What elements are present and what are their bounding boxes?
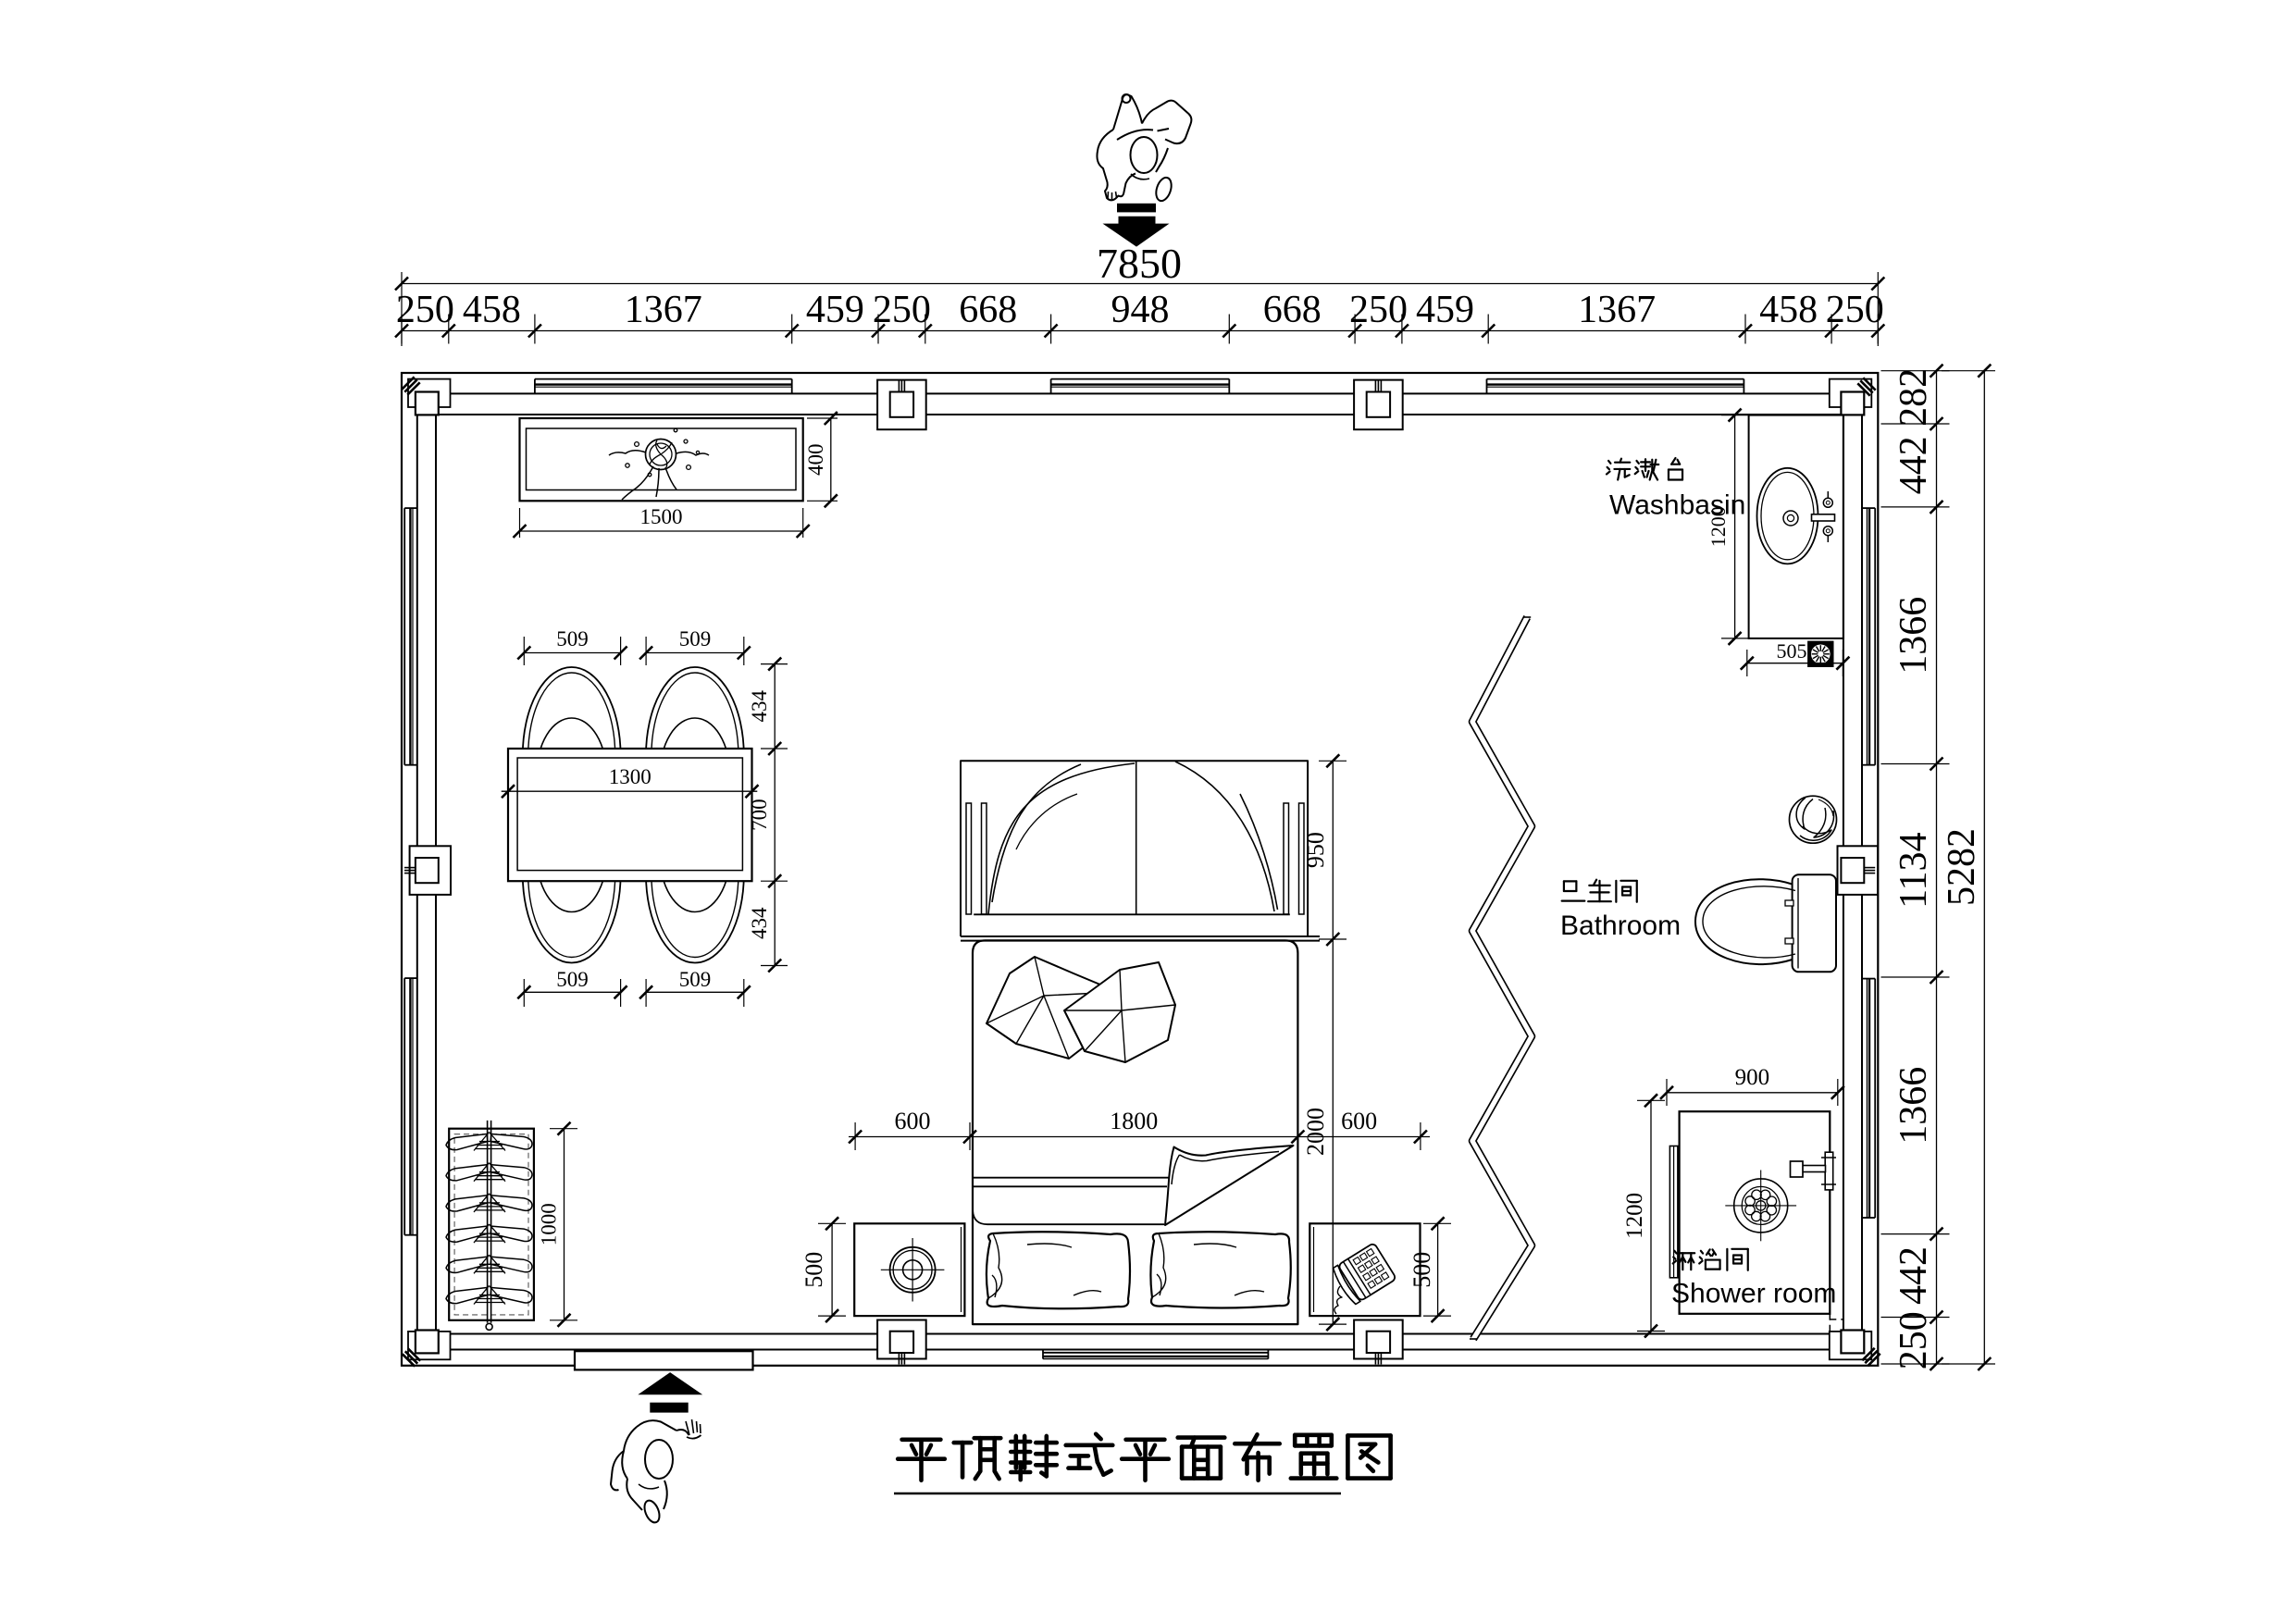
svg-text:442: 442 — [1893, 1246, 1935, 1305]
svg-text:509: 509 — [556, 968, 589, 991]
svg-text:458: 458 — [1759, 289, 1818, 331]
svg-text:950: 950 — [1302, 832, 1329, 868]
svg-text:1200: 1200 — [1622, 1193, 1647, 1239]
svg-text:1366: 1366 — [1893, 1067, 1935, 1145]
svg-text:400: 400 — [804, 443, 827, 476]
svg-text:7850: 7850 — [1097, 240, 1182, 287]
svg-text:1367: 1367 — [625, 289, 702, 331]
svg-text:1800: 1800 — [1110, 1108, 1158, 1134]
svg-text:434: 434 — [748, 690, 771, 723]
svg-text:509: 509 — [556, 627, 589, 650]
svg-text:668: 668 — [959, 289, 1017, 331]
svg-text:900: 900 — [1735, 1065, 1770, 1090]
svg-text:668: 668 — [1263, 289, 1322, 331]
svg-text:600: 600 — [1341, 1108, 1377, 1134]
svg-text:250: 250 — [1893, 1311, 1935, 1369]
svg-text:505: 505 — [1777, 639, 1807, 663]
svg-text:5282: 5282 — [1941, 828, 1983, 906]
svg-text:Shower room: Shower room — [1671, 1279, 1836, 1309]
svg-text:458: 458 — [463, 289, 521, 331]
svg-text:250: 250 — [1826, 289, 1884, 331]
svg-text:250: 250 — [873, 289, 931, 331]
svg-text:600: 600 — [895, 1108, 931, 1134]
svg-text:2000: 2000 — [1302, 1108, 1329, 1156]
svg-text:509: 509 — [679, 627, 712, 650]
svg-text:250: 250 — [396, 289, 454, 331]
svg-text:1134: 1134 — [1893, 832, 1935, 908]
svg-text:282: 282 — [1893, 368, 1935, 427]
svg-text:442: 442 — [1893, 436, 1935, 494]
svg-text:509: 509 — [679, 968, 712, 991]
svg-text:948: 948 — [1111, 289, 1170, 331]
svg-text:500: 500 — [800, 1252, 827, 1288]
svg-text:459: 459 — [806, 289, 864, 331]
svg-text:434: 434 — [748, 907, 771, 939]
svg-text:Bathroom: Bathroom — [1560, 911, 1681, 941]
svg-text:500: 500 — [1409, 1252, 1435, 1288]
svg-text:250: 250 — [1349, 289, 1408, 331]
svg-text:1366: 1366 — [1893, 597, 1935, 675]
svg-text:700: 700 — [748, 799, 771, 831]
svg-text:459: 459 — [1416, 289, 1474, 331]
svg-text:1000: 1000 — [538, 1203, 561, 1245]
svg-text:1300: 1300 — [609, 765, 652, 788]
svg-text:Washbasin: Washbasin — [1609, 490, 1745, 521]
svg-text:1367: 1367 — [1578, 289, 1656, 331]
svg-text:1500: 1500 — [640, 505, 683, 528]
